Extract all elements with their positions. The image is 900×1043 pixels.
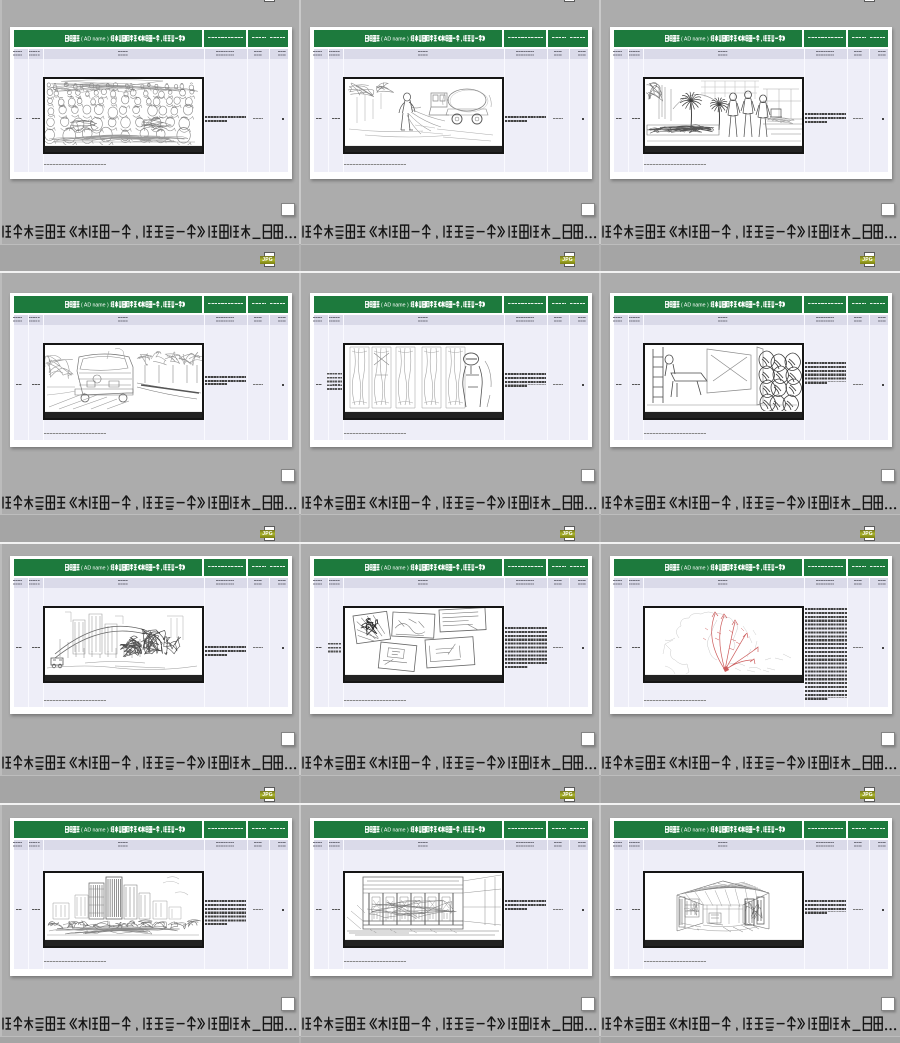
svg-text:( AD name ) :: ( AD name ) : xyxy=(681,302,712,308)
svg-text:( AD name ) :: ( AD name ) : xyxy=(81,302,112,308)
svg-text:( AD name ) :: ( AD name ) : xyxy=(381,827,412,833)
svg-text:( AD name ) :: ( AD name ) : xyxy=(381,565,412,571)
svg-text:( AD name ) :: ( AD name ) : xyxy=(81,565,112,571)
svg-text:( AD name ) :: ( AD name ) : xyxy=(381,302,412,308)
svg-text:( AD name ) :: ( AD name ) : xyxy=(681,565,712,571)
svg-text:( AD name ) :: ( AD name ) : xyxy=(381,36,412,42)
svg-text:( AD name ) :: ( AD name ) : xyxy=(81,827,112,833)
svg-text:( AD name ) :: ( AD name ) : xyxy=(681,36,712,42)
svg-text:( AD name ) :: ( AD name ) : xyxy=(681,827,712,833)
svg-text:( AD name ) :: ( AD name ) : xyxy=(81,36,112,42)
